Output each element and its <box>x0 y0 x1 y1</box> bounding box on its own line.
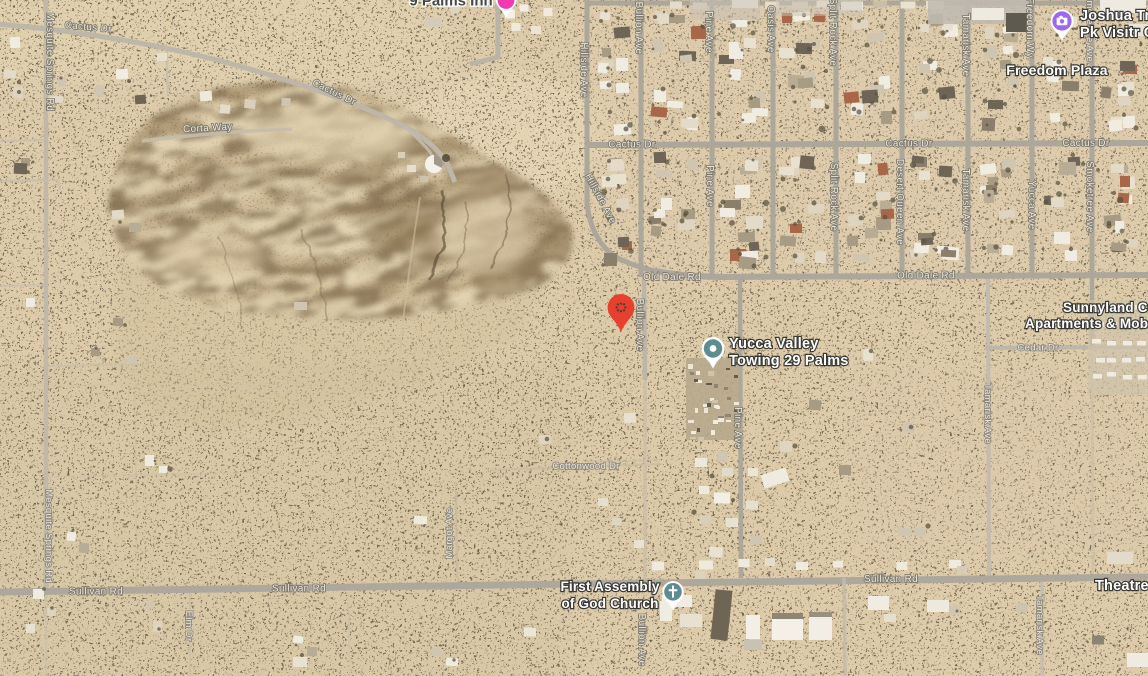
svg-text:Pk Visitr Ct: Pk Visitr Ct <box>1080 25 1148 41</box>
svg-text:Theatre 2: Theatre 2 <box>1095 578 1148 594</box>
svg-text:Tamarisk Ave: Tamarisk Ave <box>982 384 993 444</box>
svg-text:Hillside Ave: Hillside Ave <box>578 42 589 97</box>
svg-text:9 Palms Inn: 9 Palms Inn <box>409 0 492 10</box>
svg-text:Tamarisk Ave: Tamarisk Ave <box>960 169 971 232</box>
svg-text:Sullivan Rd: Sullivan Rd <box>864 574 918 585</box>
svg-text:Oasis Ave: Oasis Ave <box>765 5 776 53</box>
svg-text:Margot Ave: Margot Ave <box>444 508 455 559</box>
svg-text:Cedar Dr: Cedar Dr <box>1018 343 1059 354</box>
svg-text:Yucca Valley: Yucca Valley <box>729 336 818 352</box>
svg-text:Desert Queen Ave: Desert Queen Ave <box>894 159 905 245</box>
svg-text:Cactus Dr: Cactus Dr <box>608 140 655 151</box>
svg-text:Cactus Dr: Cactus Dr <box>1062 138 1109 149</box>
svg-text:Pine Ave: Pine Ave <box>704 165 715 207</box>
svg-text:Tamarisk Ave: Tamarisk Ave <box>960 14 971 77</box>
svg-text:Old Dale Rd: Old Dale Rd <box>897 271 955 282</box>
svg-text:Yucca Ave: Yucca Ave <box>1026 180 1037 229</box>
svg-text:Sullivan Rd: Sullivan Rd <box>272 584 326 595</box>
svg-text:Bullion Ave: Bullion Ave <box>636 614 647 667</box>
svg-text:Sullivan Rd: Sullivan Rd <box>69 587 123 598</box>
svg-text:Split Rock Ave: Split Rock Ave <box>828 163 839 232</box>
svg-text:Bullion Ave: Bullion Ave <box>633 2 644 55</box>
svg-text:Apartments & Mobil: Apartments & Mobil <box>1025 316 1148 331</box>
svg-text:Pine Ave: Pine Ave <box>703 11 714 53</box>
svg-text:Towing 29 Palms: Towing 29 Palms <box>729 353 849 369</box>
svg-text:Bullion Ave: Bullion Ave <box>634 299 645 352</box>
svg-text:of God Church: of God Church <box>561 596 658 611</box>
svg-text:Joshua Tre: Joshua Tre <box>1080 8 1148 24</box>
svg-text:Mesquite Springs Rd: Mesquite Springs Rd <box>43 489 54 583</box>
svg-text:Freedom Wy: Freedom Wy <box>1024 0 1035 58</box>
svg-text:Cactus Dr: Cactus Dr <box>885 139 932 150</box>
svg-text:First Assembly: First Assembly <box>560 579 659 594</box>
svg-text:Split Rock Ave: Split Rock Ave <box>827 0 838 66</box>
svg-text:Cottonwood Dr: Cottonwood Dr <box>552 461 619 472</box>
svg-text:Smoketree Ave: Smoketree Ave <box>1084 161 1095 233</box>
svg-text:Sunnyland Co: Sunnyland Co <box>1063 300 1148 315</box>
svg-text:Tamarisk Ave: Tamarisk Ave <box>1034 595 1045 655</box>
svg-text:Elm Dr: Elm Dr <box>183 611 194 642</box>
svg-text:Old Dale Rd: Old Dale Rd <box>643 272 701 283</box>
svg-text:Freedom Plaza: Freedom Plaza <box>1006 62 1107 78</box>
svg-text:Pine Ave: Pine Ave <box>732 407 743 449</box>
svg-text:Mesquite Springs Rd: Mesquite Springs Rd <box>44 13 55 112</box>
